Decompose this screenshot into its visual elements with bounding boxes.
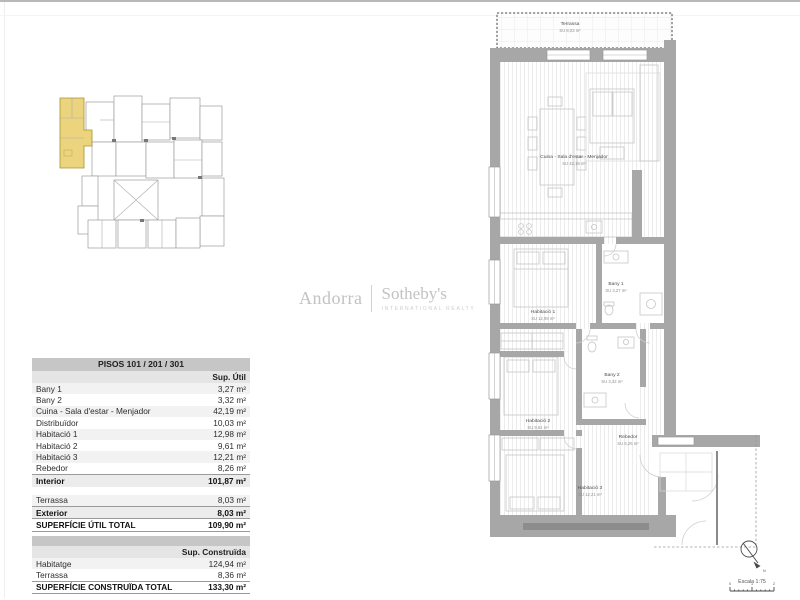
brand-name-left: Andorra <box>299 288 362 309</box>
row-value: 8,26 m² <box>218 463 246 473</box>
row-value: 101,87 m² <box>208 476 246 486</box>
row-value: 12,98 m² <box>213 429 246 439</box>
room-area-label: SU 12,98 m² <box>531 316 555 321</box>
room-area-label: SU 8,26 m² <box>617 441 639 446</box>
row-value: 10,03 m² <box>213 418 246 428</box>
scale-tick-1: 1 <box>751 582 753 586</box>
north-label: N <box>763 569 766 573</box>
brand-name-right-block: Sotheby's INTERNATIONAL REALTY <box>381 284 475 312</box>
surface-construida-table: Sup. Construïda Habitatge 124,94 m² Terr… <box>32 536 250 594</box>
north-and-scale: N Escala 1:75 0 1 2 <box>722 538 786 598</box>
room-label: Habitació 3 <box>578 485 603 491</box>
scale-tick-2: 2 <box>773 582 775 586</box>
row-value: 8,03 m² <box>217 508 246 518</box>
scale-bar <box>730 587 774 591</box>
row-value: 42,19 m² <box>213 406 246 416</box>
table-row: Habitació 1 12,98 m² <box>32 429 250 440</box>
brand-subtitle: INTERNATIONAL REALTY <box>381 306 475 312</box>
scale-tick-0: 0 <box>729 582 731 586</box>
surface-util-table: PISOS 101 / 201 / 301 Sup. Útil Bany 1 3… <box>32 358 250 532</box>
key-plan-rooms <box>78 96 224 248</box>
brand-name-right: Sotheby's <box>381 284 475 304</box>
apartment-floor-plan: Terrassa SU 8,03 m² <box>488 5 788 597</box>
row-label: Exterior <box>36 508 67 518</box>
room-label: Terrassa <box>561 21 580 27</box>
row-label: SUPERFÍCIE CONSTRUÏDA TOTAL <box>36 582 172 592</box>
room-label: Rebedor <box>619 434 638 440</box>
room-label: Bany 1 <box>608 281 624 287</box>
row-value: 3,27 m² <box>218 384 246 394</box>
row-label: Habitació 2 <box>36 441 78 451</box>
exterior-total-row: Exterior 8,03 m² <box>32 506 250 518</box>
row-value: 133,30 m² <box>208 582 246 592</box>
table-row: Terrassa 8,03 m² <box>32 495 250 506</box>
construida-total-row: SUPERFÍCIE CONSTRUÏDA TOTAL 133,30 m² <box>32 581 250 594</box>
row-value: 3,32 m² <box>218 395 246 405</box>
room-area-label: SU 3,27 m² <box>605 288 627 293</box>
util-total-row: SUPERFÍCIE ÚTIL TOTAL 109,90 m² <box>32 518 250 531</box>
row-value: 109,90 m² <box>208 520 246 530</box>
brochure-page: Andorra Sotheby's INTERNATIONAL REALTY P… <box>0 0 800 600</box>
table-title: PISOS 101 / 201 / 301 <box>32 358 250 371</box>
row-value: 12,21 m² <box>213 452 246 462</box>
table-row: Bany 1 3,27 m² <box>32 383 250 394</box>
table-title-bar <box>32 536 250 546</box>
row-label: Habitació 1 <box>36 429 78 439</box>
table-row: Distribuïdor 10,03 m² <box>32 417 250 428</box>
table-column-header: Sup. Útil <box>32 371 250 383</box>
room-area-label: SU 8,03 m² <box>559 28 581 33</box>
room-area-label: SU 12,21 m² <box>578 492 602 497</box>
north-arrow-icon: N <box>741 541 766 573</box>
page-left-border <box>4 2 5 598</box>
building-key-plan <box>52 80 242 258</box>
row-value: 9,61 m² <box>218 441 246 451</box>
room-label: Habitació 1 <box>531 309 556 315</box>
room-label: Habitació 2 <box>526 418 551 424</box>
row-value: 124,94 m² <box>209 559 246 569</box>
room-label: Bany 2 <box>604 372 620 378</box>
row-label: Terrassa <box>36 495 68 505</box>
row-label: SUPERFÍCIE ÚTIL TOTAL <box>36 520 136 530</box>
brand-logo: Andorra Sotheby's INTERNATIONAL REALTY <box>299 284 475 312</box>
table-row: Rebedor 8,26 m² <box>32 463 250 474</box>
room-area-label: SU 9,61 m² <box>527 425 549 430</box>
row-value: 8,36 m² <box>218 570 246 580</box>
page-top-border <box>0 0 800 2</box>
terrace-area: Terrassa SU 8,03 m² <box>497 13 672 48</box>
table-row: Habitació 2 9,61 m² <box>32 440 250 451</box>
row-value: 8,03 m² <box>218 495 246 505</box>
room-area-label: SU 3,32 m² <box>601 379 623 384</box>
row-label: Rebedor <box>36 463 68 473</box>
row-label: Interior <box>36 476 65 486</box>
table-row: Habitació 3 12,21 m² <box>32 451 250 462</box>
row-label: Cuina - Sala d'estar - Menjador <box>36 406 151 416</box>
room-label: Cuina - Sala d'estar - Menjador <box>540 154 608 160</box>
table-row: Terrassa 8,36 m² <box>32 569 250 580</box>
table-column-header: Sup. Construïda <box>32 546 250 558</box>
row-label: Habitatge <box>36 559 72 569</box>
row-label: Bany 1 <box>36 384 62 394</box>
row-label: Distribuïdor <box>36 418 78 428</box>
row-label: Habitació 3 <box>36 452 78 462</box>
brand-divider <box>371 285 372 312</box>
interior-total-row: Interior 101,87 m² <box>32 474 250 486</box>
table-row: Cuina - Sala d'estar - Menjador 42,19 m² <box>32 406 250 417</box>
room-area-label: SU 42,19 m² <box>562 161 586 166</box>
table-row: Bany 2 3,32 m² <box>32 394 250 405</box>
table-row: Habitatge 124,94 m² <box>32 558 250 569</box>
row-label: Bany 2 <box>36 395 62 405</box>
table-gap <box>32 487 250 495</box>
row-label: Terrassa <box>36 570 68 580</box>
